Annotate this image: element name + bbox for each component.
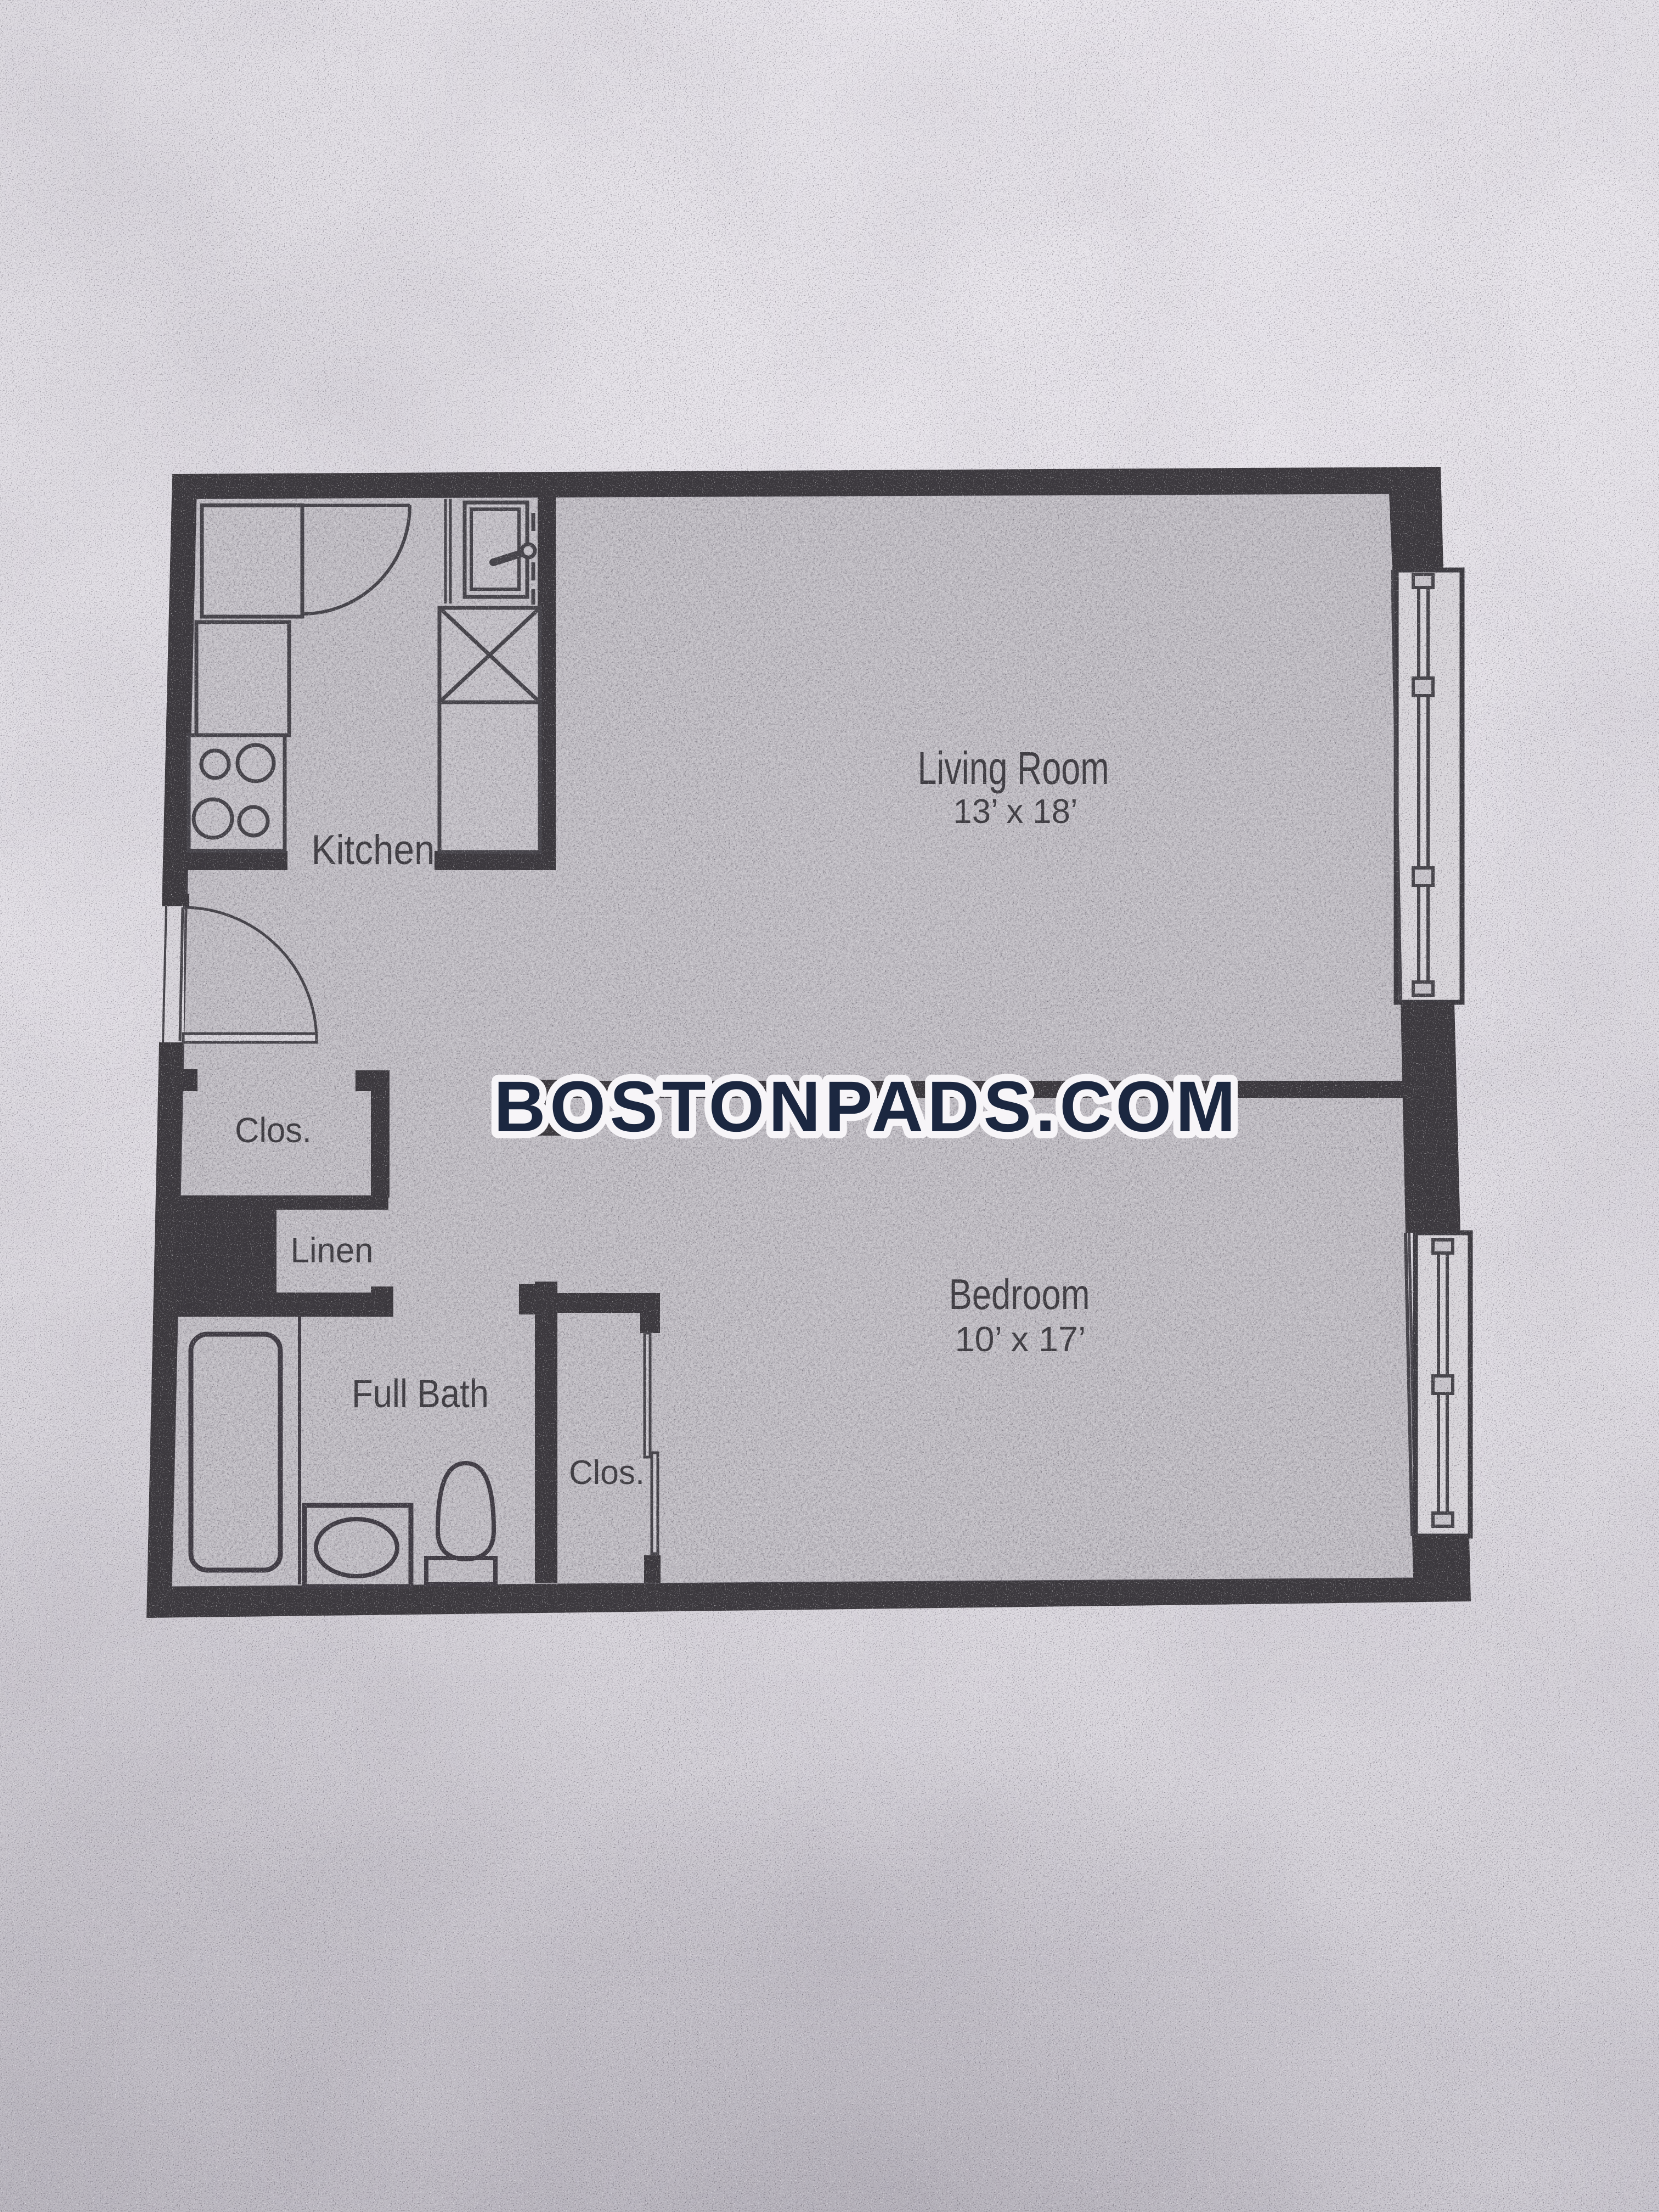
svg-text:BOSTONPADS.COM: BOSTONPADS.COM <box>494 1066 1235 1147</box>
